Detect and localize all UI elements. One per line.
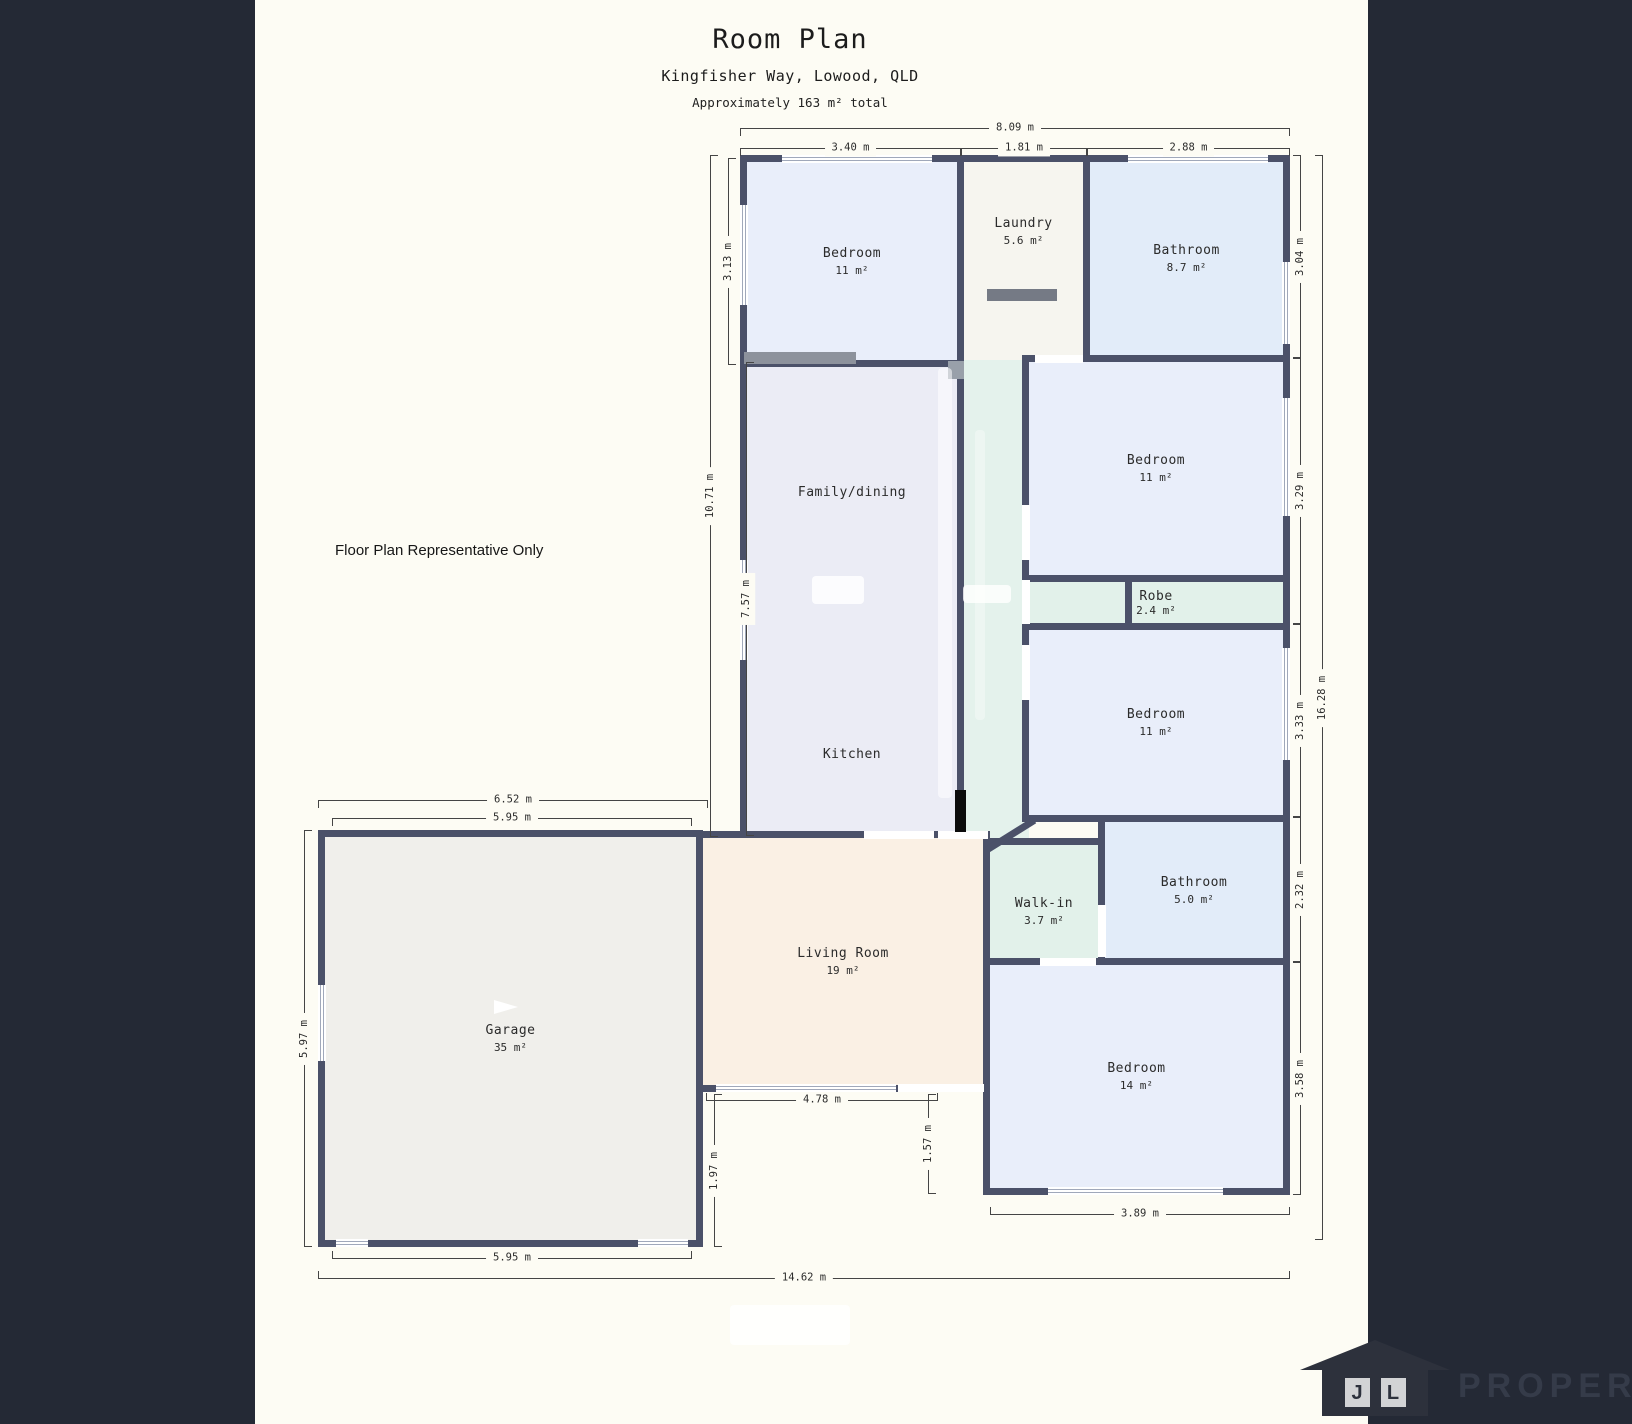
- window: [1282, 648, 1290, 760]
- door-opening: [898, 1084, 984, 1092]
- room-area-label: 19 m²: [797, 964, 889, 977]
- room-label: Robe 2.4 m²: [1136, 589, 1176, 617]
- brand-name: PROPERTY: [1458, 1367, 1632, 1406]
- room-area-label: 11 m²: [823, 264, 881, 277]
- robe-divider-wall: [1125, 577, 1132, 627]
- room-label: Bedroom 11 m²: [1127, 707, 1185, 738]
- room-name-label: Walk-in: [1015, 896, 1073, 911]
- window: [1128, 155, 1268, 163]
- dim-right-bedroom-mid: 3.33 m: [1300, 624, 1301, 817]
- floor-plan-canvas: Room Plan Kingfisher Way, Lowood, QLD Ap…: [0, 0, 1632, 1424]
- room-area-label: 2.4 m²: [1136, 604, 1176, 617]
- watermark-smudge: [730, 1305, 850, 1345]
- house-body: J L: [1322, 1369, 1428, 1416]
- laundry-bench: [987, 289, 1057, 301]
- dim-label: 2.32 m: [1293, 864, 1309, 916]
- dim-top-bathroom: 2.88 m: [1087, 148, 1290, 149]
- dim-garage-left: 5.97 m: [304, 830, 305, 1247]
- dim-label: 3.13 m: [721, 236, 737, 288]
- door-opening: [1035, 355, 1083, 363]
- dim-garage-top-outer: 6.52 m: [318, 800, 708, 801]
- room-bedroom-lower: Bedroom 14 m²: [983, 958, 1290, 1195]
- room-name-label: Bathroom: [1161, 875, 1228, 890]
- plan-header: Room Plan Kingfisher Way, Lowood, QLD Ap…: [440, 24, 1140, 110]
- furniture-ghost: [963, 585, 1011, 603]
- dim-label: 3.04 m: [1293, 231, 1309, 283]
- dim-right-bathroom-lower: 2.32 m: [1300, 817, 1301, 962]
- right-dark-panel: [1368, 0, 1632, 1424]
- dim-label: 14.62 m: [775, 1270, 833, 1286]
- dim-label: 1.57 m: [921, 1118, 937, 1170]
- dim-right-overall: 16.28 m: [1322, 155, 1323, 1240]
- dim-label: 3.29 m: [1293, 465, 1309, 517]
- window: [740, 205, 748, 305]
- dim-top-overall: 8.09 m: [740, 128, 1290, 129]
- dim-left-overall: 10.71 m: [710, 155, 711, 837]
- room-label: Bedroom 11 m²: [1127, 453, 1185, 484]
- room-bedroom-right-mid: Bedroom 11 m²: [1022, 623, 1290, 822]
- dim-top-bedroom: 3.40 m: [740, 148, 961, 149]
- furniture-ghost: [938, 368, 952, 798]
- room-area-label: 3.7 m²: [1015, 914, 1073, 927]
- dim-label: 6.52 m: [487, 792, 539, 808]
- window: [336, 1239, 368, 1247]
- built-in-robe: [744, 352, 856, 364]
- room-area-label: 8.7 m²: [1153, 261, 1220, 274]
- logo-letter-l: L: [1379, 1376, 1408, 1409]
- room-area-label: 14 m²: [1107, 1079, 1165, 1092]
- room-label: Garage 35 m²: [486, 1023, 536, 1054]
- room-name-label: Robe: [1136, 589, 1176, 604]
- dim-label: 4.78 m: [796, 1092, 848, 1108]
- door-opening: [864, 831, 934, 839]
- dim-label: 3.33 m: [1293, 695, 1309, 747]
- dim-bedroom-lower-left: 1.57 m: [928, 1094, 929, 1194]
- room-area-label: 35 m²: [486, 1041, 536, 1054]
- room-laundry: Laundry 5.6 m²: [957, 155, 1090, 360]
- dim-label: 3.89 m: [1114, 1206, 1166, 1222]
- dim-label: 16.28 m: [1315, 668, 1331, 726]
- dim-label: 5.97 m: [297, 1013, 313, 1065]
- room-name-label: Family/dining: [747, 485, 957, 500]
- room-robe: Robe 2.4 m²: [1022, 575, 1290, 630]
- room-name-label: Bathroom: [1153, 243, 1220, 258]
- door-opening: [1022, 505, 1030, 560]
- house-icon: J L: [1300, 1338, 1450, 1418]
- room-bedroom-right-upper: Bedroom 11 m²: [1022, 355, 1290, 582]
- dim-label: 3.58 m: [1293, 1053, 1309, 1105]
- room-label: Bedroom 11 m²: [823, 246, 881, 277]
- dim-bedroom-lower-bottom: 3.89 m: [990, 1214, 1290, 1215]
- room-walk-in: Walk-in 3.7 m²: [983, 838, 1105, 965]
- room-label: Bathroom 8.7 m²: [1153, 243, 1220, 274]
- window: [1282, 398, 1290, 516]
- room-name-label: Garage: [486, 1023, 536, 1038]
- furniture-ghost: [812, 576, 864, 604]
- room-bathroom-lower: Bathroom 5.0 m²: [1098, 815, 1290, 965]
- door-opening: [1022, 580, 1030, 624]
- room-label: Family/dining: [747, 485, 957, 500]
- room-area-label: 5.6 m²: [994, 234, 1052, 247]
- room-label: Laundry 5.6 m²: [994, 216, 1052, 247]
- garage-door-arrow-icon: [494, 1000, 518, 1014]
- dim-label: 1.97 m: [707, 1145, 723, 1197]
- room-label: Bathroom 5.0 m²: [1161, 875, 1228, 906]
- window: [1282, 262, 1290, 344]
- window: [318, 985, 326, 1061]
- disclaimer-text: Floor Plan Representative Only: [335, 542, 543, 559]
- room-area-label: 11 m²: [1127, 471, 1185, 484]
- dim-garage-bottom: 5.95 m: [332, 1258, 692, 1259]
- property-address: Kingfisher Way, Lowood, QLD: [440, 67, 1140, 85]
- dim-right-bathroom: 3.04 m: [1300, 155, 1301, 358]
- room-label: Bedroom 14 m²: [1107, 1061, 1165, 1092]
- roof-shape: [1300, 1340, 1450, 1370]
- furniture-ghost: [975, 430, 985, 720]
- total-area-note: Approximately 163 m² total: [440, 95, 1140, 110]
- room-name-label: Living Room: [797, 946, 889, 961]
- dim-bottom-overall: 14.62 m: [318, 1278, 1290, 1279]
- window: [1048, 1187, 1223, 1195]
- window: [716, 1084, 896, 1092]
- room-name-label: Bedroom: [1127, 453, 1185, 468]
- door-opening: [938, 831, 988, 839]
- brand-logo: J L PROPERTY: [1300, 1338, 1632, 1418]
- door-opening: [1040, 958, 1096, 966]
- room-label: Kitchen: [747, 747, 957, 762]
- dim-label: 1.81 m: [998, 140, 1050, 156]
- dim-living-bottom: 4.78 m: [706, 1100, 938, 1101]
- door-opening: [1098, 905, 1106, 957]
- dim-living-left: 1.97 m: [714, 1094, 715, 1247]
- dim-label: 3.40 m: [825, 140, 877, 156]
- room-name-label: Bedroom: [823, 246, 881, 261]
- kitchen-appliance: [955, 790, 966, 832]
- dim-right-bedroom-lower: 3.58 m: [1300, 962, 1301, 1195]
- room-area-label: 11 m²: [1127, 725, 1185, 738]
- room-name-label: Bedroom: [1107, 1061, 1165, 1076]
- dim-left-bedroom: 3.13 m: [728, 158, 729, 365]
- dim-garage-top-inner: 5.95 m: [332, 818, 692, 819]
- room-bathroom-top: Bathroom 8.7 m²: [1083, 155, 1290, 362]
- dim-label: 7.57 m: [739, 573, 755, 625]
- room-name-label: Laundry: [994, 216, 1052, 231]
- room-label: Living Room 19 m²: [797, 946, 889, 977]
- room-label: Walk-in 3.7 m²: [1015, 896, 1073, 927]
- logo-letter-j: J: [1343, 1376, 1372, 1409]
- left-dark-panel: [0, 0, 255, 1424]
- dim-top-laundry: 1.81 m: [961, 148, 1087, 149]
- room-living: Living Room 19 m²: [696, 831, 990, 1092]
- dim-right-bedroom-upper: 3.29 m: [1300, 358, 1301, 624]
- dim-left-family: 7.57 m: [746, 362, 747, 836]
- dim-label: 8.09 m: [989, 120, 1041, 136]
- dim-label: 10.71 m: [703, 467, 719, 525]
- room-name-label: Kitchen: [747, 747, 957, 762]
- room-bedroom-top: Bedroom 11 m²: [740, 155, 964, 367]
- window: [638, 1239, 688, 1247]
- room-area-label: 5.0 m²: [1161, 893, 1228, 906]
- window: [782, 155, 932, 163]
- room-garage: Garage 35 m²: [318, 830, 703, 1247]
- dim-label: 5.95 m: [486, 810, 538, 826]
- page-title: Room Plan: [440, 24, 1140, 55]
- door-opening: [1022, 645, 1030, 700]
- room-name-label: Bedroom: [1127, 707, 1185, 722]
- dim-label: 2.88 m: [1163, 140, 1215, 156]
- dim-label: 5.95 m: [486, 1250, 538, 1266]
